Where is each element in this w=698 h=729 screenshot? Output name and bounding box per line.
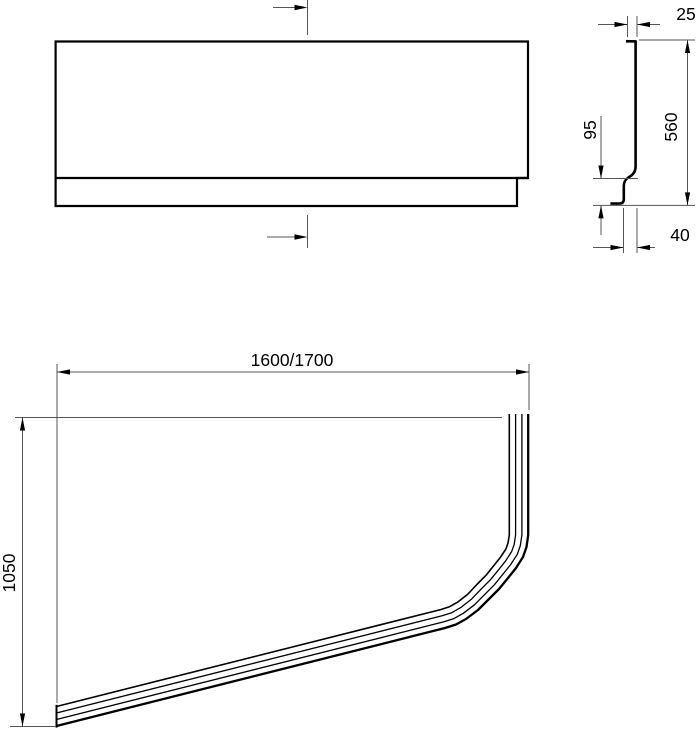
side-profile-view: 25 560 95 40 xyxy=(580,4,696,253)
dim-label-25: 25 xyxy=(676,4,695,24)
plan-contour-outer xyxy=(57,414,529,726)
centerline-marker-top xyxy=(273,0,308,35)
dim-label-1600-1700: 1600/1700 xyxy=(251,350,334,370)
centerline-arrow-top xyxy=(295,5,308,11)
drawing-svg: 25 560 95 40 xyxy=(0,0,698,729)
plan-view: 1600/1700 1050 xyxy=(0,350,529,728)
profile-section xyxy=(610,41,635,203)
plan-contour-mid2 xyxy=(57,414,522,720)
centerline-arrow-bottom xyxy=(295,234,308,240)
dim-depth: 1050 xyxy=(0,418,502,727)
front-panel-outline xyxy=(56,42,528,207)
front-elevation-view xyxy=(56,0,528,248)
dim-label-560: 560 xyxy=(661,112,681,141)
technical-drawing-sheet: 25 560 95 40 xyxy=(0,0,698,729)
dim-total-height: 560 xyxy=(593,40,695,205)
dim-label-40: 40 xyxy=(670,225,690,245)
centerline-marker-bottom xyxy=(267,215,308,248)
dim-label-1050: 1050 xyxy=(0,553,19,592)
dim-bottom-offset: 40 xyxy=(593,208,690,253)
dim-length: 1600/1700 xyxy=(57,350,529,703)
dim-top-thickness: 25 xyxy=(598,4,696,37)
dim-label-95: 95 xyxy=(580,120,600,139)
